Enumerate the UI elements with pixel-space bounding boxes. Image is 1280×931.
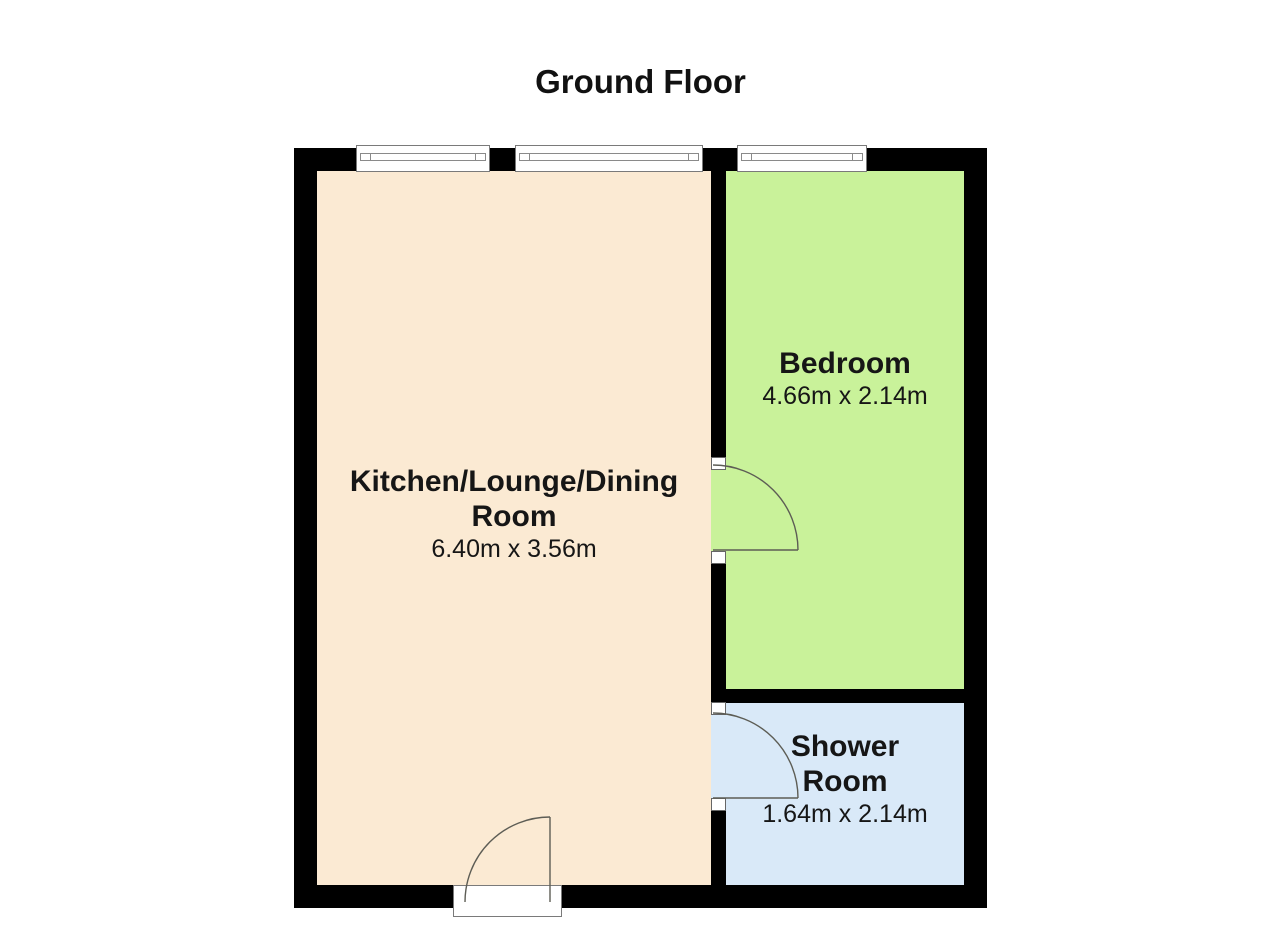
bedroom-label: Bedroom 4.66m x 2.14m xyxy=(726,346,964,412)
bedroom-door-opening xyxy=(711,470,726,551)
shower-name-line1: Shower xyxy=(726,729,964,764)
bedroom-room xyxy=(726,171,964,689)
wall-left xyxy=(294,148,317,908)
window-pane xyxy=(360,153,486,161)
window-tick xyxy=(370,153,371,161)
window-tick xyxy=(529,153,530,161)
floor-plan: Ground Floor Kitchen/Lounge/Dining Room … xyxy=(0,0,1280,931)
window-pane xyxy=(741,153,863,161)
floor-plan-title: Ground Floor xyxy=(294,63,987,101)
wall-bottom xyxy=(294,885,987,908)
kitchen-name-line2: Room xyxy=(317,499,711,534)
window-3 xyxy=(737,145,867,172)
bedroom-name: Bedroom xyxy=(726,346,964,381)
kitchen-label: Kitchen/Lounge/Dining Room 6.40m x 3.56m xyxy=(317,464,711,565)
shower-label: Shower Room 1.64m x 2.14m xyxy=(726,729,964,830)
kitchen-dimensions: 6.40m x 3.56m xyxy=(317,534,711,565)
window-1 xyxy=(356,145,490,172)
shower-door-jamb-bottom xyxy=(711,798,726,811)
window-tick xyxy=(751,153,752,161)
entrance-threshold xyxy=(453,885,562,917)
bedroom-door-jamb-top xyxy=(711,457,726,470)
window-tick xyxy=(852,153,853,161)
shower-dimensions: 1.64m x 2.14m xyxy=(726,799,964,830)
bedroom-dimensions: 4.66m x 2.14m xyxy=(726,381,964,412)
shower-door-opening xyxy=(711,714,726,798)
window-pane xyxy=(519,153,699,161)
window-tick xyxy=(475,153,476,161)
wall-bedroom-shower xyxy=(711,689,964,703)
window-2 xyxy=(515,145,703,172)
bedroom-door-jamb-bottom xyxy=(711,551,726,564)
kitchen-name-line1: Kitchen/Lounge/Dining xyxy=(317,464,711,499)
shower-door-jamb-top xyxy=(711,702,726,715)
shower-name-line2: Room xyxy=(726,764,964,799)
wall-right xyxy=(964,148,987,908)
window-tick xyxy=(688,153,689,161)
